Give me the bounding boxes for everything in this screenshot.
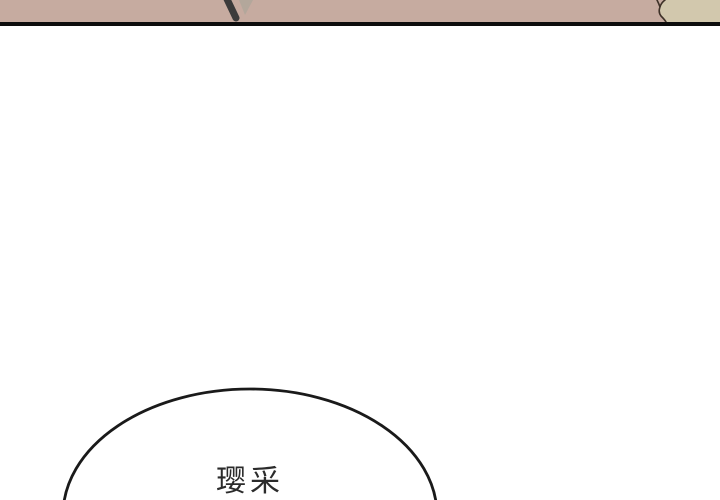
arm-shape [660, 0, 720, 22]
panel-background [0, 0, 720, 22]
top-panel-art [0, 0, 720, 26]
speech-bubble-text: 璎采 [140, 464, 360, 500]
comic-page: 璎采 [0, 0, 720, 500]
panel-gutter [0, 26, 720, 386]
top-panel-strip [0, 0, 720, 26]
